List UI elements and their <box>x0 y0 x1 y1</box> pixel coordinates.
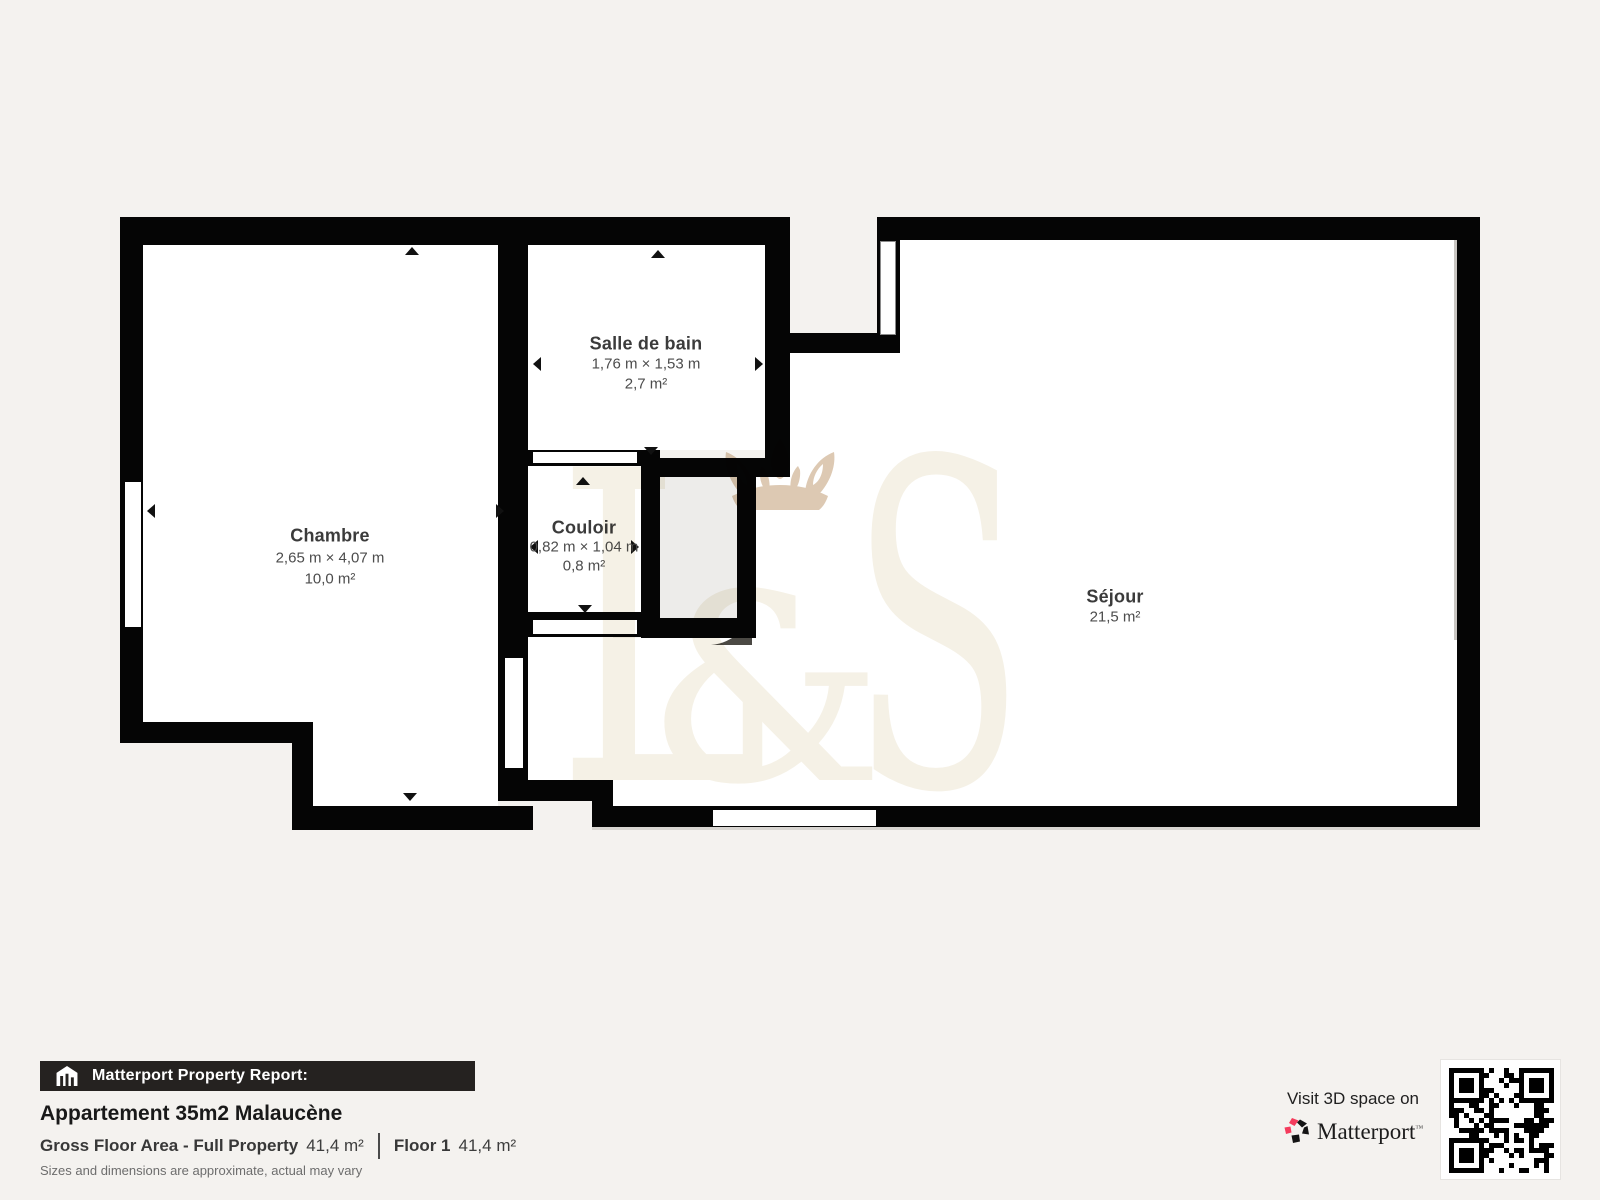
wall-segment <box>292 806 533 830</box>
matterport-pinwheel-icon <box>1283 1117 1310 1144</box>
dimension-arrow-right-icon <box>496 504 504 518</box>
dimension-arrow-right-icon <box>755 357 763 371</box>
report-banner: Matterport Property Report: <box>40 1061 475 1091</box>
floor-plan: Chambre 2,65 m × 4,07 m 10,0 m² Salle de… <box>0 0 1600 1200</box>
window-glass-line <box>1454 240 1457 640</box>
wall-segment <box>877 217 1480 240</box>
house-icon <box>56 1066 78 1086</box>
divider <box>378 1133 380 1159</box>
wall-segment <box>1457 217 1480 827</box>
trademark-symbol: ™ <box>1415 1123 1423 1132</box>
room-fill-sejour <box>900 237 1457 806</box>
matterport-wordmark: Matterport™ <box>1317 1119 1423 1145</box>
window-opening <box>125 482 141 627</box>
wall-segment <box>120 217 790 245</box>
wall-segment <box>765 217 790 477</box>
door-opening <box>533 452 637 463</box>
dimension-arrow-down-icon <box>403 793 417 801</box>
room-area: 0,8 m² <box>563 558 606 575</box>
gross-floor-area-label: Gross Floor Area - Full Property <box>40 1136 298 1156</box>
property-title: Appartement 35m2 Malaucène <box>40 1102 342 1126</box>
room-fill-entry-lower <box>613 638 756 806</box>
wall-segment <box>737 458 756 638</box>
room-dimensions: 1,76 m × 1,53 m <box>592 356 701 373</box>
door-opening <box>880 241 896 335</box>
room-label-couloir: Couloir <box>552 518 616 539</box>
wall-shadow <box>592 827 1480 830</box>
disclaimer-text: Sizes and dimensions are approximate, ac… <box>40 1163 362 1178</box>
room-fill-sejour-left <box>790 353 900 806</box>
dimension-arrow-up-icon <box>651 250 665 258</box>
floor-label: Floor 1 <box>394 1136 451 1156</box>
dimension-arrow-left-icon <box>147 504 155 518</box>
room-fill-chambre <box>143 245 498 722</box>
visit-3d-text: Visit 3D space on <box>1200 1089 1419 1109</box>
window-opening <box>713 810 876 826</box>
qr-code <box>1440 1059 1561 1180</box>
room-area: 10,0 m² <box>305 571 356 588</box>
gross-floor-area-value: 41,4 m² <box>306 1136 364 1156</box>
room-dimensions: 0,82 m × 1,04 m <box>530 539 639 556</box>
wall-segment <box>120 217 143 743</box>
room-label-chambre: Chambre <box>290 526 369 547</box>
room-label-sejour: Séjour <box>1086 587 1143 608</box>
room-area: 2,7 m² <box>625 376 668 393</box>
wall-segment <box>641 458 660 638</box>
dimension-arrow-up-icon <box>405 247 419 255</box>
dimension-arrow-down-icon <box>644 447 658 455</box>
room-area: 21,5 m² <box>1090 609 1141 626</box>
report-banner-label: Matterport Property Report: <box>92 1067 308 1085</box>
door-opening <box>533 620 637 634</box>
room-fill-entry-hall <box>528 637 613 780</box>
room-dimensions: 2,65 m × 4,07 m <box>276 550 385 567</box>
room-label-salle-de-bain: Salle de bain <box>590 334 703 355</box>
dimension-arrow-up-icon <box>576 477 590 485</box>
window-opening <box>505 658 523 768</box>
wall-segment <box>641 618 756 638</box>
dimension-arrow-down-icon <box>578 605 592 613</box>
wall-segment <box>120 722 313 743</box>
dimension-arrow-left-icon <box>533 357 541 371</box>
area-summary: Gross Floor Area - Full Property 41,4 m²… <box>40 1133 516 1159</box>
floor-area-value: 41,4 m² <box>459 1136 517 1156</box>
